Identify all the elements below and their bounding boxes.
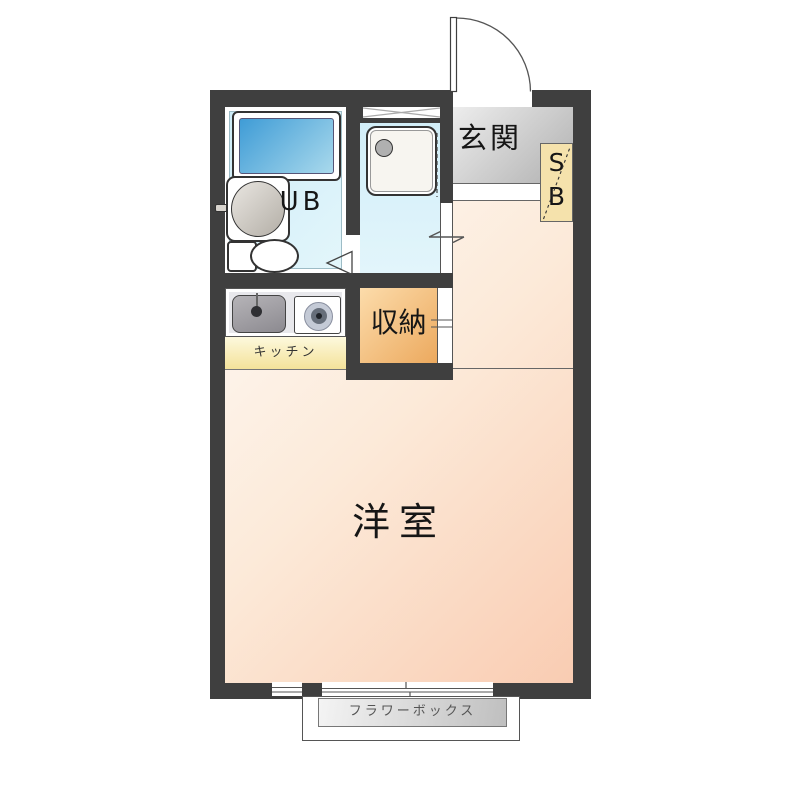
kitchen-zone: キッチン [225, 337, 346, 370]
bathtub [232, 111, 341, 181]
wall-right [573, 90, 591, 699]
faucet-head-icon [251, 306, 262, 317]
flower-box-label: フラワーボックス [349, 705, 477, 719]
wall-below-storage [346, 363, 453, 380]
entrance-label: 玄関 [458, 123, 522, 155]
window-small [272, 682, 302, 696]
entrance-step [453, 183, 540, 201]
wall-left [210, 90, 225, 699]
wall-mid-horizontal [210, 273, 453, 288]
flower-box: フラワーボックス [318, 698, 507, 727]
toilet-bowl [250, 239, 299, 273]
hallway-room-boundary-line [453, 368, 573, 369]
unit-bath-label: UB [260, 188, 344, 217]
burner-center-dot [316, 313, 322, 319]
wall-top-washer [346, 90, 453, 123]
wall-washer-hall-divider [440, 123, 453, 203]
storage-label: 収納 [359, 308, 438, 339]
washer-drain-icon [375, 139, 393, 157]
entrance-door-icon [451, 18, 531, 92]
wall-ub-washer-divider [346, 107, 360, 235]
shoe-box-label: S B [540, 146, 573, 214]
hallway-sliding-door [440, 203, 453, 273]
western-room-label: 洋室 [225, 502, 573, 544]
window-large [322, 682, 493, 696]
burner-icon [304, 302, 333, 331]
bathtub-water [239, 118, 334, 174]
storage-door [437, 288, 453, 363]
shoe-box-letter-b: B [540, 180, 573, 214]
unit-bath-door-opening [346, 235, 360, 273]
stove [294, 296, 341, 334]
kitchen-label: キッチン [253, 346, 317, 360]
floor-plan: キッチン フラワーボックス 玄関 S [0, 0, 800, 800]
shoe-box-letter-s: S [540, 146, 573, 180]
washing-machine-pan [366, 126, 437, 196]
